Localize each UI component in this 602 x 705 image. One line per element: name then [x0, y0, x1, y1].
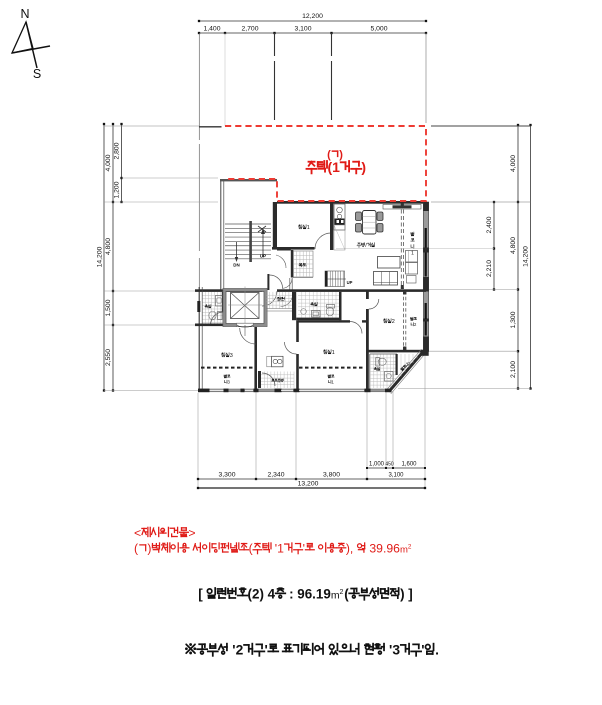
svg-text:1,000: 1,000 — [369, 462, 385, 468]
svg-text:1: 1 — [411, 251, 414, 257]
svg-text:1: 1 — [307, 225, 310, 231]
svg-text:12,200: 12,200 — [302, 13, 323, 20]
svg-text:(: ( — [249, 542, 253, 556]
svg-text:'3: '3 — [385, 643, 400, 658]
svg-text:': ' — [303, 542, 305, 556]
svg-text:UP: UP — [347, 280, 353, 285]
svg-text:4,000: 4,000 — [510, 155, 517, 172]
svg-text:4,000: 4,000 — [105, 154, 112, 171]
svg-text:13,200: 13,200 — [298, 481, 319, 488]
svg-text:'1: '1 — [271, 542, 284, 556]
svg-text:2,100: 2,100 — [510, 361, 517, 378]
svg-text:3,100: 3,100 — [294, 26, 311, 33]
svg-text:) ]: ) ] — [400, 587, 413, 602]
svg-text:1,600: 1,600 — [401, 462, 417, 468]
svg-text:2,800: 2,800 — [114, 142, 121, 159]
svg-text:1,400: 1,400 — [203, 26, 220, 33]
svg-text:): ) — [147, 542, 151, 556]
svg-text:(1: (1 — [327, 159, 340, 175]
svg-text:2: 2 — [340, 589, 344, 596]
svg-text:2: 2 — [392, 319, 395, 325]
svg-text:): ) — [361, 159, 366, 175]
svg-text:1,300: 1,300 — [510, 311, 517, 328]
svg-text:N: N — [20, 7, 29, 21]
svg-text:2: 2 — [408, 544, 412, 551]
svg-text:DN: DN — [233, 263, 240, 268]
svg-text:5,000: 5,000 — [370, 26, 387, 33]
svg-text:'2: '2 — [228, 643, 243, 658]
svg-text:2,550: 2,550 — [105, 349, 112, 366]
svg-text:3,100: 3,100 — [388, 473, 404, 479]
svg-text:': ' — [421, 643, 424, 658]
svg-text:1,500: 1,500 — [105, 299, 112, 316]
svg-text:4,800: 4,800 — [510, 237, 517, 254]
svg-text:),: ), — [346, 542, 357, 556]
svg-text:3: 3 — [230, 353, 233, 359]
svg-text:2,210: 2,210 — [486, 260, 493, 277]
svg-text:<: < — [134, 526, 141, 540]
svg-text:2,340: 2,340 — [267, 472, 284, 479]
svg-text:m: m — [331, 591, 340, 602]
svg-text:3,800: 3,800 — [323, 472, 340, 479]
svg-text:2,400: 2,400 — [486, 216, 493, 233]
svg-text:14,200: 14,200 — [97, 246, 104, 267]
svg-text:m: m — [400, 545, 408, 556]
svg-text:3,300: 3,300 — [218, 472, 235, 479]
svg-text:: 96.19: : 96.19 — [285, 587, 330, 602]
svg-text:.: . — [435, 643, 439, 658]
svg-text:1,200: 1,200 — [114, 181, 121, 198]
svg-text:>: > — [188, 526, 195, 540]
svg-text:(2) 4: (2) 4 — [248, 587, 276, 602]
svg-text:4,800: 4,800 — [105, 238, 112, 255]
svg-text:UP: UP — [260, 254, 266, 259]
svg-text:': ' — [264, 643, 267, 658]
svg-text:1: 1 — [332, 350, 335, 356]
svg-text:S: S — [33, 67, 41, 81]
svg-text:450: 450 — [385, 462, 394, 468]
svg-text:14,200: 14,200 — [523, 246, 530, 267]
svg-text:2,700: 2,700 — [241, 26, 258, 33]
svg-text:39.96: 39.96 — [366, 542, 400, 556]
svg-text:[: [ — [198, 587, 206, 602]
svg-text:(: ( — [134, 542, 138, 556]
